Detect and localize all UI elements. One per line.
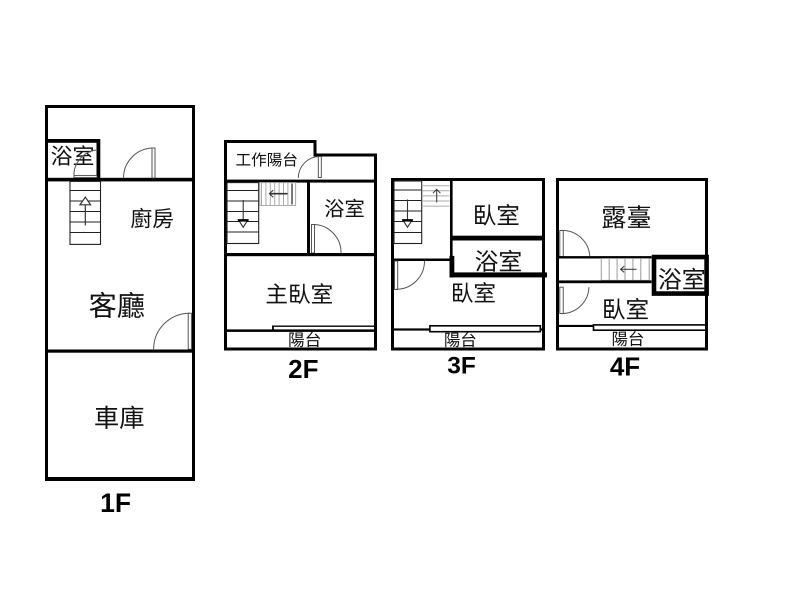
svg-text:3F: 3F xyxy=(447,353,476,380)
svg-text:2F: 2F xyxy=(288,354,318,384)
svg-text:1F: 1F xyxy=(100,488,131,518)
svg-text:4F: 4F xyxy=(610,352,640,382)
